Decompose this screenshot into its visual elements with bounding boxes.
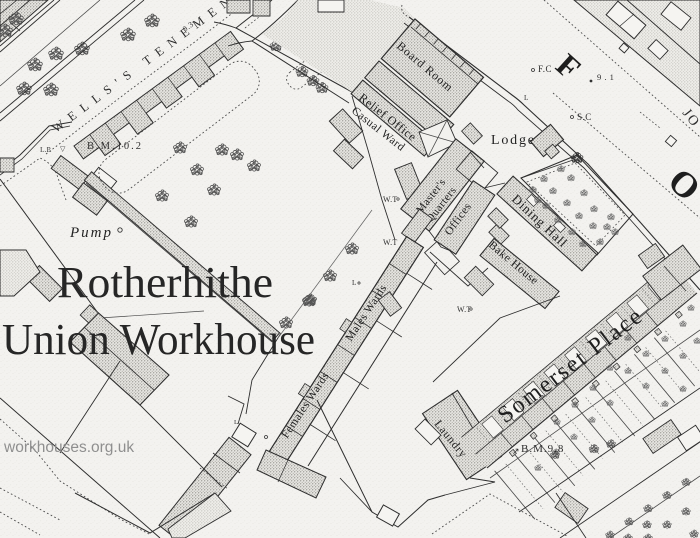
svg-text:L: L <box>524 94 528 102</box>
svg-text:▽: ▽ <box>60 145 66 153</box>
svg-text:B.M.9.8: B.M.9.8 <box>521 443 564 455</box>
svg-text:W.T: W.T <box>457 305 472 314</box>
svg-text:W.T: W.T <box>383 238 398 247</box>
svg-text:Union Workhouse: Union Workhouse <box>2 315 315 364</box>
svg-text:L: L <box>352 279 356 287</box>
svg-text:Lodge: Lodge <box>491 133 536 148</box>
svg-text:↗: ↗ <box>512 446 520 456</box>
svg-text:L: L <box>234 419 238 426</box>
svg-text:F.C: F.C <box>538 64 552 74</box>
svg-text:workhouses.org.uk: workhouses.org.uk <box>3 439 134 456</box>
svg-text:Rotherhithe: Rotherhithe <box>57 258 273 307</box>
svg-text:Pump: Pump <box>69 225 113 241</box>
svg-text:W.T: W.T <box>383 195 398 204</box>
svg-text:S.C: S.C <box>577 112 592 122</box>
svg-text:L.P.: L.P. <box>40 145 52 154</box>
svg-text:9 . 1: 9 . 1 <box>597 72 614 82</box>
svg-text:B.M.10.2: B.M.10.2 <box>87 141 143 152</box>
